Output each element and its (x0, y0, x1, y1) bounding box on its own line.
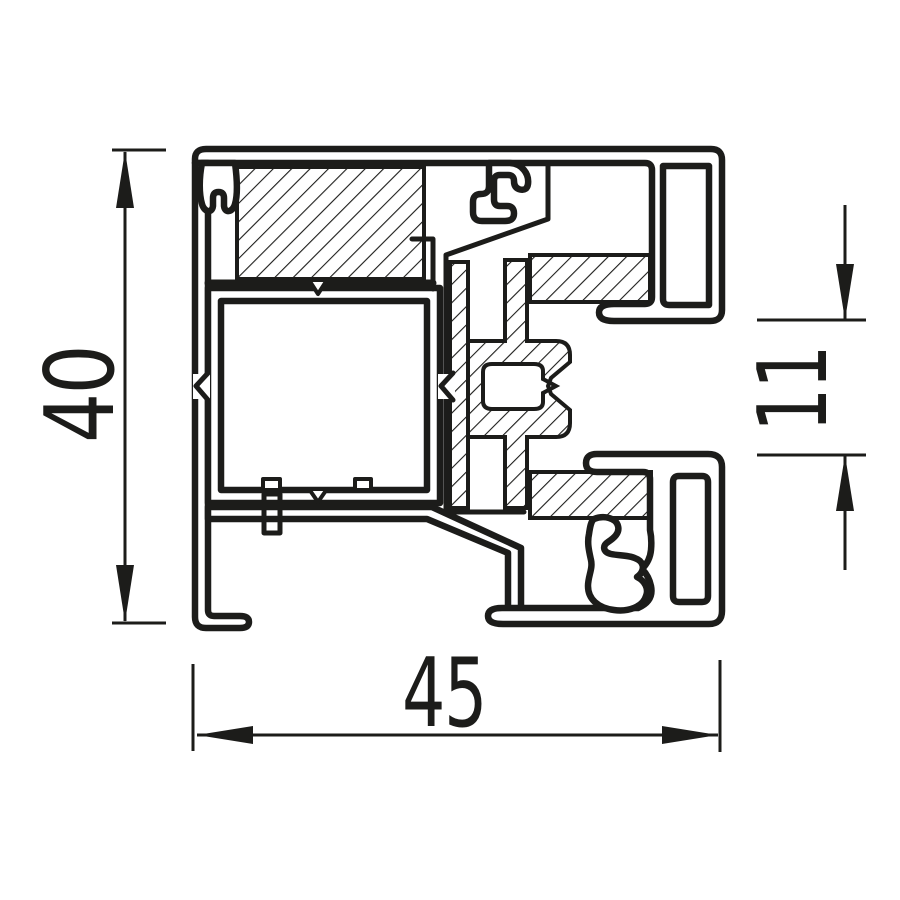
dimension-height-label: 40 (26, 346, 136, 443)
chamber-bump-left (263, 479, 280, 490)
profile-section-drawing: 40 45 11 (0, 0, 900, 900)
dimension-detail-label: 11 (739, 346, 849, 432)
arrow-up-icon (116, 151, 134, 208)
dimension-height: 40 (26, 150, 166, 623)
insulation-block-upper-right (530, 255, 650, 302)
profile-geometry (193, 149, 722, 628)
chamber-bump-right (355, 479, 371, 490)
dimension-width-label: 45 (402, 639, 486, 749)
insulation-block-lower-right (530, 472, 651, 518)
dimension-width: 45 (193, 639, 720, 752)
insulation-block-top (237, 167, 424, 279)
clip-top-left (200, 163, 237, 211)
break-symbol-left-wall (193, 373, 210, 400)
gasket-bottom-right (588, 517, 647, 610)
arrow-right-icon (662, 726, 718, 744)
dimension-detail: 11 (739, 205, 866, 570)
drawing-canvas: 40 45 11 (0, 0, 900, 900)
arrow-up-icon (836, 455, 854, 511)
break-symbol-sash-wall (438, 373, 455, 400)
arrow-left-icon (197, 726, 253, 744)
frame-lower-flange (208, 507, 521, 611)
arrow-down-icon (116, 565, 134, 622)
clip-top-center (473, 163, 528, 221)
arrow-down-icon (836, 264, 854, 320)
frame-main-chamber (208, 288, 440, 503)
